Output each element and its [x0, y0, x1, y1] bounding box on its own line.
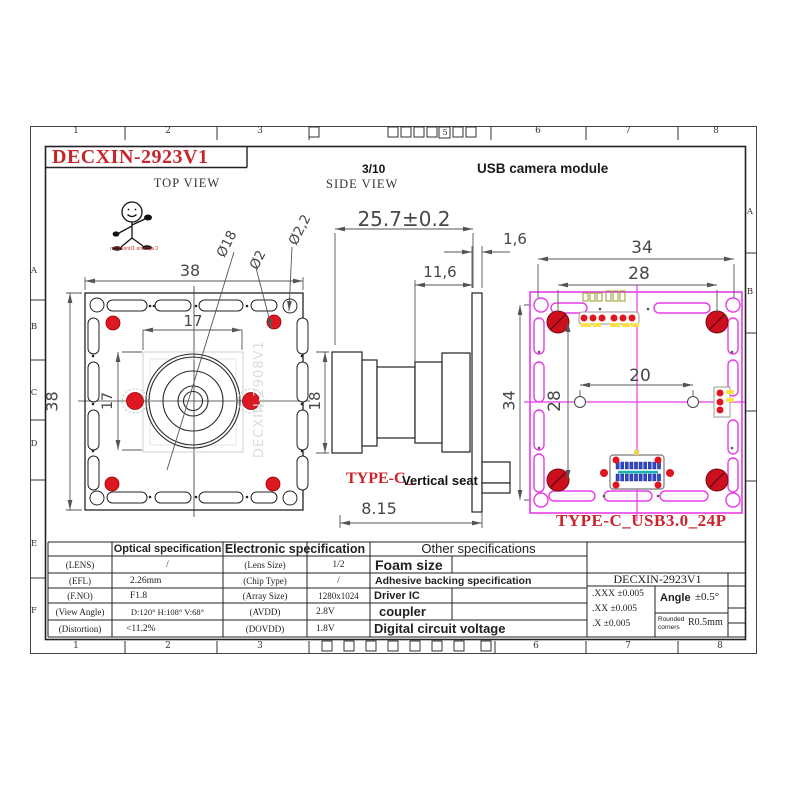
dim-corner-hole-dia: Ø2,2 [283, 207, 317, 253]
angle-value: ±0.5° [695, 591, 719, 603]
tolerance-xx: .XX ±0.005 [592, 604, 637, 614]
title-block-part-number: DECXIN-2923V1 [587, 573, 728, 586]
other-row-foam: Foam size [375, 556, 575, 573]
side-view-label: SIDE VIEW [326, 177, 396, 192]
optical-label-lens: (LENS) [48, 556, 112, 573]
mascot-caption: Capture Direction [108, 246, 160, 252]
electronic-value-array-size: 1280x1024 [307, 588, 370, 603]
ruler-bottom-6: 6 [530, 641, 542, 651]
ruler-top-6: 6 [532, 126, 544, 136]
optical-value-lens: / [112, 556, 223, 573]
dim-lens-dia: Ø18 [211, 223, 243, 266]
optical-value-view-angle: D:120° H:108° V:68° [112, 603, 223, 620]
top-view-label: TOP VIEW [152, 176, 222, 191]
dim-pitch-h: 17 [175, 312, 211, 330]
dim-top-width: 38 [170, 261, 210, 280]
ruler-left-E: E [28, 539, 40, 549]
other-row-digital-voltage: Digital circuit voltage [374, 620, 584, 637]
page-note: 3/10 [362, 162, 385, 176]
optical-label-distortion: (Distortion) [48, 620, 112, 637]
watermark: DECXIN-2908V1 [252, 340, 267, 458]
ruler-left-B: B [28, 322, 40, 332]
ruler-left-D: D [28, 439, 40, 449]
ruler-bottom-1: 1 [70, 641, 82, 651]
optical-header: Optical specification [112, 542, 223, 556]
dim-overall-len: 25.7±0.2 [344, 207, 464, 231]
ruler-left-F: F [28, 606, 40, 616]
ruler-top-8: 8 [710, 126, 722, 136]
optical-value-efl: 2.26mm [130, 573, 223, 588]
other-row-coupler: coupler [379, 603, 579, 620]
electronic-value-avdd: 2.8V [316, 603, 370, 620]
electronic-label-dovdd: (DOVDD) [223, 620, 307, 637]
electronic-header: Electronic specification [223, 542, 367, 556]
drawing-sheet: { "colors":{"accent_red":"#c9252c","mage… [0, 0, 800, 800]
ruler-left-A: A [28, 266, 40, 276]
dim-hole-dia: Ø2 [244, 243, 272, 277]
angle-label: Angle [660, 592, 691, 604]
other-row-adhesive: Adhesive backing specification [375, 573, 585, 588]
ruler-top-2: 2 [162, 126, 174, 136]
back-view-label: TYPE-C_USB3.0_24P [556, 511, 726, 531]
dim-hole-pitch-w: 28 [614, 264, 664, 284]
dim-board-height: 34 [500, 384, 519, 418]
electronic-value-lens-size: 1/2 [307, 556, 370, 573]
ruler-top-7: 7 [622, 126, 634, 136]
ruler-right-B: B [744, 287, 756, 297]
ruler-left-C: C [28, 388, 40, 398]
text-layer: 1 2 3 5 6 7 8 1 2 3 6 7 8 A B C D E F A … [0, 0, 800, 800]
ruler-right-A: A [744, 207, 756, 217]
optical-label-efl: (EFL) [48, 573, 112, 588]
dim-top-height: 38 [43, 382, 62, 422]
electronic-value-dovdd: 1.8V [316, 620, 370, 637]
dim-center-pitch: 20 [615, 366, 665, 386]
dim-hole-pitch-h: 28 [545, 379, 565, 423]
dim-lens-height: 18 [306, 385, 324, 417]
ruler-top-3: 3 [254, 126, 266, 136]
optical-label-fno: (F.NO) [48, 588, 112, 603]
optical-value-fno: F1.8 [130, 588, 223, 603]
dim-seat-len: 8.15 [355, 499, 403, 518]
electronic-label-lens-size: (Lens Size) [223, 556, 307, 573]
ruler-top-5: 5 [439, 128, 451, 137]
tolerance-xxx: .XXX ±0.005 [592, 589, 644, 599]
ruler-bottom-7: 7 [622, 641, 634, 651]
dim-back-width: 34 [617, 238, 667, 258]
other-row-driver-ic: Driver IC [374, 588, 574, 603]
ruler-bottom-2: 2 [162, 641, 174, 651]
electronic-label-avdd: (AVDD) [223, 603, 307, 620]
ruler-bottom-3: 3 [254, 641, 266, 651]
rounded-corners-label: Rounded corners [658, 616, 688, 633]
electronic-label-array-size: (Array Size) [223, 588, 307, 603]
tolerance-x: .X ±0.005 [592, 619, 630, 629]
sheet-title: DECXIN-2923V1 [52, 146, 209, 169]
ruler-bottom-8: 8 [714, 641, 726, 651]
other-header: Other specifications [370, 540, 587, 556]
product-name: USB camera module [477, 161, 608, 176]
dim-barrel-len: 11,6 [420, 263, 460, 281]
side-connector-note: Vertical seat [402, 473, 478, 488]
dim-pcb-thickness: 1,6 [498, 230, 532, 248]
electronic-value-chip-type: / [307, 573, 370, 588]
optical-value-distortion: <11.2% [126, 620, 223, 637]
dim-pitch-v: 17 [100, 385, 116, 417]
ruler-top-1: 1 [70, 126, 82, 136]
rounded-corners-value: R0.5mm [688, 617, 723, 628]
electronic-label-chip-type: (Chip Type) [223, 573, 307, 588]
optical-label-view-angle: (View Angle) [48, 603, 112, 620]
